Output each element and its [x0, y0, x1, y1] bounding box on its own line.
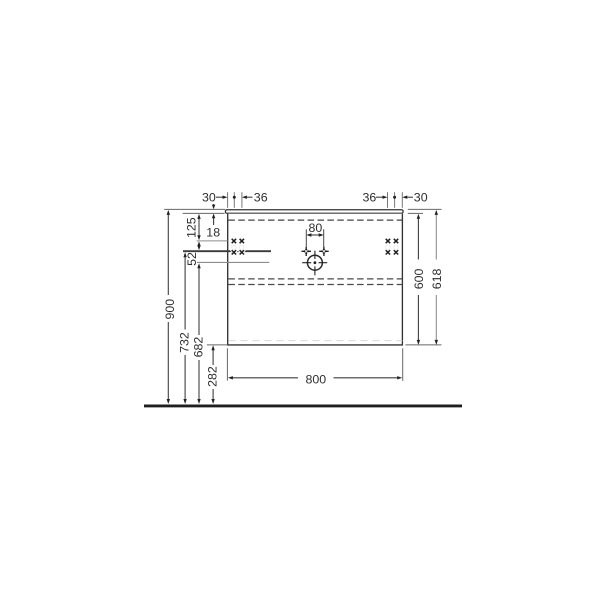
- svg-text:282: 282: [206, 366, 220, 387]
- svg-text:732: 732: [177, 332, 191, 353]
- svg-text:800: 800: [306, 372, 327, 386]
- svg-text:18: 18: [206, 225, 220, 239]
- svg-text:125: 125: [185, 217, 199, 238]
- svg-text:30: 30: [202, 191, 216, 205]
- svg-text:900: 900: [163, 299, 177, 320]
- svg-text:52: 52: [185, 252, 199, 266]
- svg-text:36: 36: [254, 191, 268, 205]
- svg-text:600: 600: [412, 269, 426, 290]
- svg-text:682: 682: [191, 337, 205, 358]
- svg-text:618: 618: [430, 269, 444, 290]
- svg-text:80: 80: [309, 221, 323, 235]
- svg-text:36: 36: [363, 191, 377, 205]
- svg-text:30: 30: [414, 191, 428, 205]
